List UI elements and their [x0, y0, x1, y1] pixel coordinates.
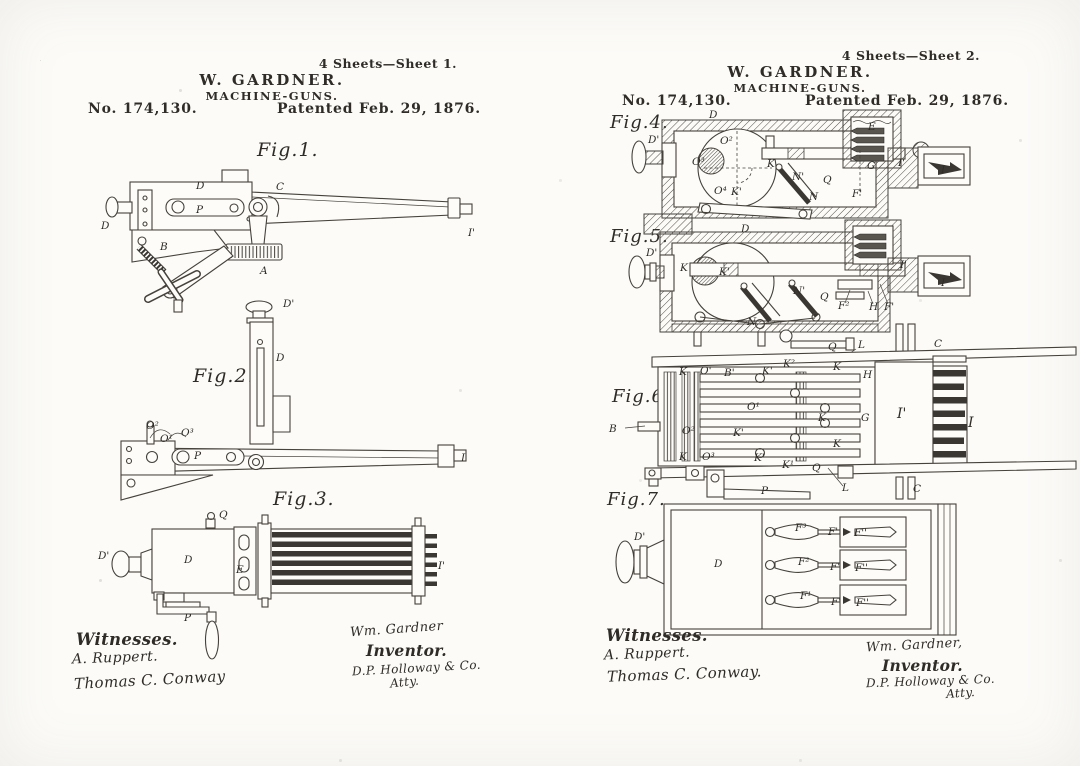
- part-label: Q: [812, 462, 821, 474]
- witness-signature-1: A. Ruppert.: [604, 645, 690, 664]
- lock-frame: [625, 367, 875, 466]
- part-label: D': [97, 550, 109, 562]
- part-label: H: [862, 369, 873, 381]
- patent-scan-page: 4 Sheets—Sheet 1. W. GARDNER. MACHINE-GU…: [0, 0, 1080, 766]
- figure-1-drawing: DDPCBAI': [95, 140, 485, 315]
- part-label: O²: [146, 420, 159, 432]
- attorney-title: Atty.: [946, 685, 976, 701]
- part-label: E: [867, 121, 876, 133]
- part-label: I: [967, 415, 974, 431]
- figure-6-drawing: QLCKO'B'K'K²KHO¹KGBO²K'KO³K'K¹KQPLCI'I: [600, 320, 1080, 502]
- part-label: D: [740, 223, 750, 235]
- figure-4-drawing: D'DO²O³O⁴K'KN'NQEGI'IF': [612, 106, 1080, 236]
- part-label: I': [467, 227, 475, 239]
- part-label: O³: [702, 451, 715, 463]
- part-label: D: [713, 558, 723, 570]
- part-label: F'': [855, 597, 869, 609]
- part-label: O¹: [747, 401, 760, 413]
- part-label: P: [183, 612, 192, 624]
- part-label: N': [791, 171, 804, 183]
- part-label: I': [899, 259, 907, 271]
- part-label: D: [100, 220, 110, 232]
- part-label: F'': [854, 562, 868, 574]
- part-label: D': [282, 298, 294, 310]
- part-label: O¹: [160, 433, 173, 445]
- vertical-arm: [246, 301, 290, 444]
- part-label: F³: [794, 522, 807, 534]
- part-label: D: [708, 109, 718, 121]
- part-label: F²: [797, 556, 810, 568]
- part-label: G: [861, 412, 869, 424]
- part-label: I': [896, 406, 906, 422]
- part-label: O²: [682, 425, 695, 437]
- part-label: O': [700, 365, 712, 377]
- patent-date: Patented Feb. 29, 1876.: [277, 101, 457, 117]
- part-label: L: [857, 339, 865, 351]
- part-label: C: [934, 338, 942, 350]
- part-label: D: [183, 554, 193, 566]
- part-label: O²: [720, 135, 733, 147]
- part-label: K': [718, 266, 730, 278]
- witness-signature-2: Thomas C. Conway.: [607, 662, 762, 685]
- witnesses-heading: Witnesses.: [606, 626, 708, 645]
- inventor-name-line: W. GARDNER.: [172, 71, 372, 89]
- figure-2-drawing: D'DO²O¹O³PI: [115, 295, 475, 500]
- attorney-title: Atty.: [389, 674, 419, 691]
- part-label: K': [730, 186, 742, 198]
- part-label: D': [647, 134, 659, 146]
- part-label: K: [832, 361, 842, 373]
- part-label: C: [913, 483, 921, 495]
- part-label: P: [195, 204, 204, 216]
- part-label: Q: [820, 291, 829, 303]
- part-label: K: [766, 158, 776, 170]
- part-label: C: [276, 181, 284, 193]
- witnesses-heading: Witnesses.: [76, 630, 178, 649]
- part-label: K: [832, 438, 842, 450]
- part-label: K: [678, 366, 688, 378]
- scan-noise: [40, 60, 41, 61]
- inventor-heading: Inventor.: [882, 656, 963, 675]
- part-label: F': [827, 526, 838, 538]
- part-label: B': [723, 367, 735, 379]
- inventor-name-line: W. GARDNER.: [700, 63, 900, 81]
- part-label: O³: [692, 156, 705, 168]
- part-label: K: [679, 262, 689, 274]
- part-label: O⁴: [714, 185, 727, 197]
- part-label: B: [159, 241, 168, 253]
- part-label: I: [940, 164, 946, 176]
- part-label: I': [897, 157, 905, 169]
- part-label: F': [851, 188, 862, 200]
- part-label: F¹: [799, 590, 812, 602]
- part-label: K: [678, 451, 688, 463]
- part-label: N': [792, 285, 805, 297]
- part-label: D: [195, 180, 205, 192]
- part-label: A: [259, 265, 268, 277]
- part-label: L: [841, 482, 849, 494]
- part-label: H: [868, 301, 879, 313]
- part-label: F²: [837, 300, 850, 312]
- part-label: K': [732, 427, 744, 439]
- part-label: K': [761, 365, 773, 377]
- part-label: K²: [782, 358, 795, 370]
- witness-signature-1: A. Ruppert.: [72, 649, 158, 668]
- part-label: F': [829, 561, 840, 573]
- part-label: Q: [219, 509, 228, 521]
- part-label: F': [883, 301, 894, 313]
- part-label: K: [817, 412, 827, 424]
- part-label: Q: [828, 341, 837, 353]
- sheet-note: 4 Sheets—Sheet 1.: [297, 56, 457, 71]
- inventor-heading: Inventor.: [366, 641, 447, 660]
- part-label: Q: [823, 174, 832, 186]
- part-label: I': [437, 560, 445, 572]
- part-label: P: [193, 450, 202, 462]
- sheet-note: 4 Sheets—Sheet 2.: [820, 48, 980, 63]
- part-label: D: [275, 352, 285, 364]
- part-label: F': [830, 596, 841, 608]
- barrel-stubs: [875, 356, 967, 468]
- part-label: G: [867, 160, 875, 172]
- part-label: E: [235, 564, 244, 576]
- part-label: I: [460, 452, 466, 464]
- part-label: I: [940, 277, 946, 289]
- part-label: N: [808, 191, 819, 203]
- part-label: K': [753, 452, 765, 464]
- barrel-cluster: [271, 518, 437, 604]
- patent-number: No. 174,130.: [88, 101, 197, 117]
- part-label: B: [608, 423, 617, 435]
- part-label: K¹: [781, 459, 794, 471]
- handle-knob: [616, 540, 664, 584]
- part-label: D': [633, 531, 645, 543]
- gun-barrel: [250, 192, 472, 224]
- part-label: D': [645, 247, 657, 259]
- part-label: F'': [853, 527, 867, 539]
- part-label: O³: [181, 427, 194, 439]
